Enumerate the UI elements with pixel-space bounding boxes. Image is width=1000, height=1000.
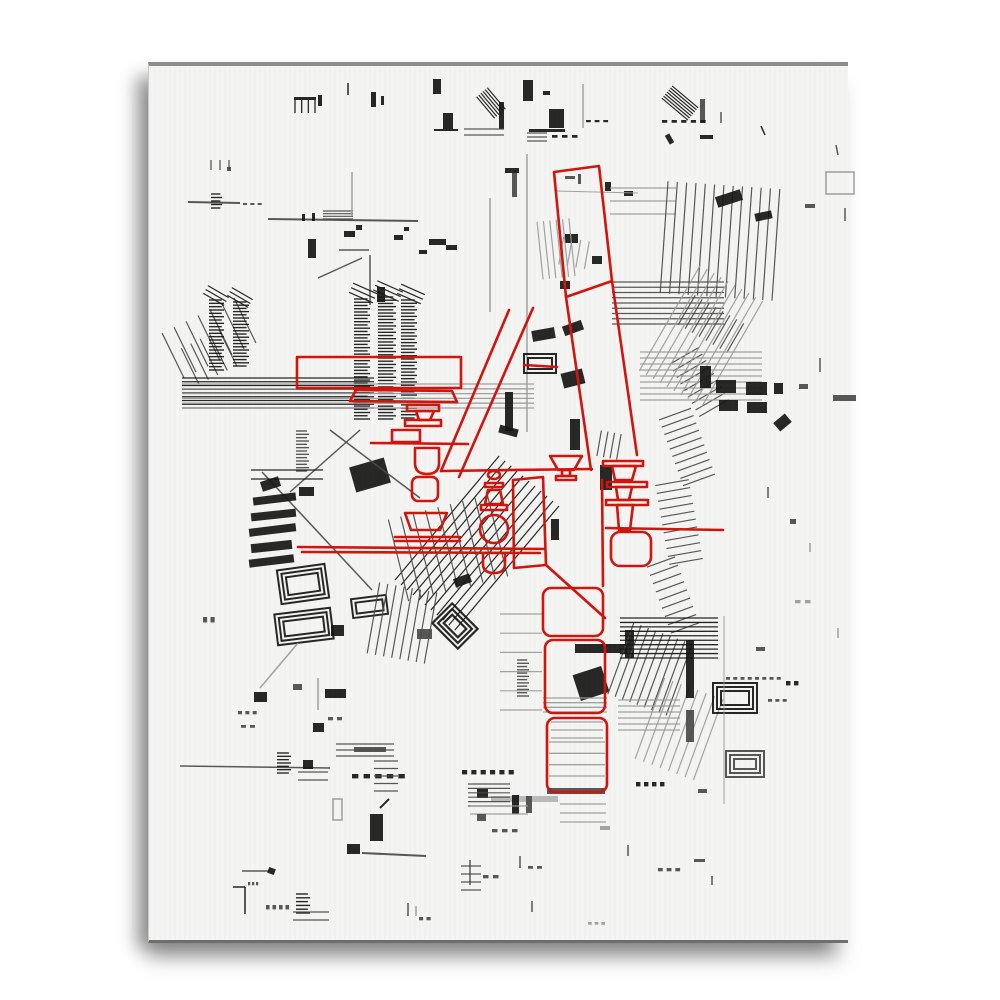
- mark-hatch-line: [657, 488, 690, 494]
- black-mark: [453, 573, 472, 587]
- mark-hatch-line: [208, 286, 229, 298]
- mark-dash: [490, 770, 495, 774]
- black-mark: [658, 84, 702, 122]
- black-mark: [254, 692, 267, 702]
- mark-hatch: [468, 784, 510, 806]
- mark-rect: [347, 844, 360, 854]
- mark-rect: [799, 384, 808, 389]
- mark-rect: [523, 80, 533, 101]
- mark-dash: [770, 677, 774, 680]
- mark-rect: [700, 99, 705, 123]
- mark-dash: [252, 882, 254, 885]
- mark-dash: [248, 882, 250, 885]
- black-mark: [756, 647, 765, 651]
- black-mark: [694, 859, 705, 862]
- black-mark: [655, 479, 703, 565]
- red-rect: [412, 477, 438, 501]
- black-mark: [768, 699, 787, 702]
- mark-dash: [795, 600, 801, 603]
- mark-rect: [578, 174, 581, 184]
- mark-dash: [726, 677, 730, 680]
- mark-rect: [294, 97, 316, 100]
- mark-hatch-line: [351, 288, 375, 299]
- mark-hatch-line: [537, 222, 543, 280]
- black-mark: [746, 382, 767, 395]
- mark-nested-rect: [283, 617, 325, 637]
- black-mark: [333, 799, 342, 820]
- mark-hatch-line: [665, 606, 693, 616]
- mark-hatch-line: [450, 504, 470, 586]
- black-mark: [331, 625, 344, 636]
- mark-diamond-rect: [438, 609, 472, 643]
- black-mark: [795, 600, 811, 603]
- mark-dash: [250, 725, 255, 728]
- black-mark: [826, 172, 854, 194]
- black-mark: [636, 782, 664, 786]
- black-mark: [472, 85, 511, 120]
- mark-hatch: [635, 678, 723, 780]
- mark-rect: [370, 814, 383, 841]
- mark-rect: [313, 723, 324, 732]
- mark-rect: [446, 245, 457, 250]
- black-mark: [543, 91, 550, 95]
- mark-dash: [660, 782, 664, 786]
- black-mark: [347, 844, 360, 854]
- black-mark: [747, 402, 767, 413]
- black-mark: [251, 509, 297, 522]
- mark-rect: [443, 113, 453, 129]
- mark-diamond-rect: [444, 615, 467, 638]
- mark-hatch-line: [670, 182, 678, 294]
- black-mark: [570, 419, 580, 450]
- mark-dash: [762, 677, 766, 680]
- mark-rect: [344, 231, 355, 237]
- mark-rect: [512, 173, 517, 197]
- mark-dash: [462, 770, 467, 774]
- mark-rect: [600, 826, 610, 830]
- red-rect: [392, 430, 420, 442]
- black-mark: [296, 431, 309, 471]
- mark-dash: [528, 866, 533, 869]
- black-mark: [774, 383, 783, 394]
- mark-rect: [312, 213, 315, 221]
- mark-line: [380, 799, 389, 808]
- black-mark: [726, 751, 764, 777]
- mark-dash: [675, 868, 680, 871]
- black-mark: [211, 194, 222, 208]
- page-background: [0, 0, 1000, 1000]
- mark-rect: [543, 91, 550, 95]
- mark-hatch-line: [688, 183, 696, 295]
- black-mark: [700, 135, 713, 139]
- mark-hatch-line: [668, 615, 696, 625]
- mark-hatch: [367, 583, 437, 664]
- mark-line: [836, 145, 838, 155]
- black-mark: [433, 79, 441, 94]
- mark-dash: [552, 135, 558, 138]
- mark-rect: [318, 95, 322, 106]
- red-rect: [405, 420, 441, 426]
- mark-hatch-line: [481, 93, 499, 114]
- mark-rect: [575, 644, 627, 653]
- black-mark: [374, 761, 398, 791]
- mark-rect: [253, 492, 297, 505]
- mark-dash: [211, 617, 215, 623]
- mark-dash: [691, 120, 696, 123]
- black-mark: [249, 554, 295, 567]
- mark-hatch-line: [479, 95, 497, 116]
- black-mark: [715, 189, 743, 207]
- mark-line: [761, 126, 765, 135]
- mark-hatch-line: [401, 284, 425, 295]
- black-mark: [665, 133, 674, 144]
- mark-rect: [434, 129, 458, 131]
- black-mark: [790, 519, 796, 524]
- mark-dash: [672, 120, 677, 123]
- mark-hatch-line: [653, 573, 681, 583]
- mark-rect: [694, 859, 705, 862]
- black-mark: [565, 176, 575, 179]
- black-mark: [470, 806, 528, 814]
- mark-dash: [427, 917, 431, 920]
- black-mark: [277, 564, 329, 604]
- mark-hatch-line: [550, 220, 556, 278]
- mark-hatch-line: [597, 430, 602, 456]
- black-mark: [468, 784, 510, 806]
- black-mark: [188, 202, 240, 203]
- mark-dash: [419, 917, 423, 920]
- mark-hatch-line: [744, 187, 752, 299]
- mark-dash: [652, 782, 656, 786]
- mark-hatch: [527, 133, 547, 141]
- black-mark: [308, 239, 316, 258]
- black-mark: [799, 384, 808, 389]
- mark-hatch-line: [753, 188, 761, 300]
- mark-dash: [243, 203, 247, 205]
- mark-hatch-line: [668, 551, 701, 557]
- black-mark: [267, 867, 276, 875]
- mark-rect: [499, 102, 504, 129]
- mark-hatch-line: [543, 221, 549, 279]
- mark-hatch-line: [650, 565, 678, 575]
- mark-rect: [686, 640, 694, 698]
- black-mark: [260, 643, 298, 688]
- mark-rect: [700, 135, 713, 139]
- black-mark: [605, 182, 611, 191]
- mark-hatch-line: [659, 590, 687, 600]
- black-mark: [302, 214, 305, 221]
- red-rect: [543, 588, 603, 636]
- mark-rect: [433, 79, 441, 94]
- mark-rect: [719, 400, 738, 411]
- red-rect: [611, 532, 651, 566]
- mark-rect: [756, 647, 765, 651]
- black-mark: [380, 799, 389, 808]
- mark-hatch-line: [772, 189, 780, 301]
- black-mark: [560, 804, 606, 822]
- black-mark: [578, 174, 581, 184]
- mark-outline-rect: [333, 799, 342, 820]
- black-mark: [505, 392, 513, 431]
- mark-hatch-line: [660, 687, 689, 768]
- red-line: [612, 281, 637, 455]
- mark-rect: [429, 239, 446, 245]
- mark-rect: [774, 383, 783, 394]
- mark-rect: [512, 795, 519, 814]
- mark-dash: [241, 725, 246, 728]
- mark-dash: [636, 782, 640, 786]
- black-mark: [754, 210, 772, 221]
- mark-dash: [537, 866, 542, 869]
- mark-hatch-line: [397, 293, 421, 304]
- black-mark: [700, 366, 711, 388]
- mark-rect: [592, 256, 602, 264]
- black-mark: [419, 917, 431, 920]
- mark-dash: [777, 677, 781, 680]
- black-mark: [716, 380, 736, 393]
- mark-dash: [755, 677, 759, 680]
- black-mark: [203, 617, 215, 623]
- black-mark: [249, 523, 297, 537]
- mark-rect: [833, 395, 856, 401]
- mark-dash: [279, 905, 283, 909]
- black-mark: [381, 96, 384, 105]
- mark-rect: [805, 204, 815, 208]
- mark-rect: [773, 413, 792, 431]
- black-mark: [562, 320, 584, 336]
- mark-line: [188, 202, 240, 203]
- mark-dash: [748, 677, 752, 680]
- mark-rect: [570, 419, 580, 450]
- black-mark: [293, 684, 302, 690]
- mark-hatch-line: [617, 434, 622, 460]
- mark-hatch-line: [603, 432, 608, 458]
- mark-rect: [715, 189, 743, 207]
- black-mark: [243, 203, 262, 205]
- black-mark: [526, 796, 532, 813]
- mark-dash: [667, 868, 672, 871]
- mark-dash: [502, 829, 508, 832]
- black-mark: [274, 608, 333, 646]
- mark-rect: [531, 327, 556, 342]
- black-mark: [529, 129, 565, 132]
- black-mark: [295, 100, 315, 113]
- mark-hatch: [662, 86, 698, 120]
- black-mark: [248, 882, 258, 885]
- red-line: [602, 480, 603, 586]
- mark-rect: [624, 191, 633, 196]
- black-mark: [233, 302, 249, 366]
- black-mark: [362, 853, 426, 856]
- mark-line: [330, 430, 420, 498]
- black-mark: [662, 120, 706, 123]
- black-mark: [551, 519, 559, 540]
- mark-rect: [505, 392, 513, 431]
- black-mark: [698, 789, 707, 793]
- mark-rect: [267, 867, 276, 875]
- mark-rect: [698, 789, 707, 793]
- black-mark: [552, 135, 578, 138]
- black-mark: [372, 280, 404, 301]
- mark-rect: [331, 625, 344, 636]
- mark-rect: [747, 402, 767, 413]
- mark-rect: [453, 573, 472, 587]
- black-mark: [586, 120, 608, 122]
- mark-dash: [245, 711, 249, 714]
- black-mark: [251, 540, 293, 553]
- mark-dash: [733, 677, 737, 680]
- mark-hatch: [659, 408, 715, 485]
- black-mark: [303, 760, 313, 769]
- black-mark: [713, 683, 757, 713]
- mark-line: [260, 643, 298, 688]
- mark-dash: [238, 711, 242, 714]
- black-mark: [323, 211, 353, 219]
- black-mark: [527, 133, 547, 141]
- black-mark: [277, 753, 291, 773]
- black-mark: [253, 492, 297, 505]
- black-mark: [524, 354, 556, 373]
- mark-hatch-line: [679, 183, 687, 295]
- mark-rect: [308, 239, 316, 258]
- mark-rect: [686, 710, 694, 742]
- black-mark: [227, 167, 231, 171]
- mark-dash: [644, 782, 648, 786]
- mark-hatch: [323, 211, 353, 219]
- black-mark: [443, 113, 453, 129]
- mark-rect: [790, 519, 796, 524]
- red-polygon: [617, 505, 633, 530]
- black-mark: [512, 795, 519, 814]
- mark-hatch: [227, 288, 252, 308]
- mark-dash: [681, 120, 686, 123]
- mark-dash: [588, 922, 592, 925]
- black-mark: [461, 866, 481, 890]
- mark-hatch-line: [660, 181, 668, 293]
- mark-rect: [227, 167, 231, 171]
- mark-dash: [700, 120, 705, 123]
- mark-hatch-line: [655, 480, 688, 486]
- mark-hatch: [597, 430, 621, 459]
- mark-rect: [665, 133, 674, 144]
- mark-dash: [203, 617, 207, 623]
- mark-rect: [302, 214, 305, 221]
- red-path: [415, 448, 439, 474]
- mark-rect: [477, 814, 486, 821]
- black-mark: [296, 894, 310, 913]
- black-mark: [312, 213, 315, 221]
- black-mark: [371, 92, 376, 107]
- black-mark: [483, 875, 499, 878]
- mark-dash: [768, 699, 772, 702]
- black-mark: [354, 747, 386, 752]
- mark-rect: [251, 509, 297, 522]
- mark-dash: [603, 120, 608, 122]
- black-mark: [512, 173, 517, 197]
- black-mark: [318, 258, 362, 278]
- black-mark: [356, 225, 362, 230]
- mark-rect: [551, 519, 559, 540]
- mark-dash: [253, 711, 257, 714]
- mark-rect: [371, 92, 376, 107]
- red-polygon: [616, 487, 632, 500]
- mark-rect: [354, 747, 386, 752]
- black-mark: [344, 231, 355, 237]
- mark-dash: [266, 905, 270, 909]
- mark-dash: [562, 135, 568, 138]
- mark-dash: [741, 677, 745, 680]
- mark-dash: [794, 681, 798, 685]
- mark-rect: [356, 225, 362, 230]
- black-mark: [531, 327, 556, 342]
- black-mark: [266, 905, 289, 909]
- artwork-svg: [0, 0, 1000, 1000]
- black-mark: [773, 413, 792, 431]
- black-mark: [551, 722, 603, 738]
- mark-rect: [381, 96, 384, 105]
- black-mark: [658, 406, 716, 488]
- mark-dash: [572, 135, 578, 138]
- black-mark: [464, 129, 504, 135]
- black-mark: [761, 126, 765, 135]
- black-mark: [328, 717, 342, 720]
- mark-rect: [529, 129, 565, 132]
- mark-hatch: [203, 286, 228, 306]
- mark-hatch-line: [661, 511, 694, 517]
- mark-hatch-line: [659, 503, 692, 509]
- mark-dash: [595, 922, 599, 925]
- black-mark: [241, 725, 255, 728]
- black-mark: [419, 250, 427, 254]
- mark-dash: [286, 905, 290, 909]
- black-mark: [549, 742, 605, 776]
- mark-rect: [254, 692, 267, 702]
- mark-rect: [293, 684, 302, 690]
- mark-line: [362, 853, 426, 856]
- mark-dash: [805, 600, 811, 603]
- mark-rect: [249, 554, 295, 567]
- mark-hatch-line: [662, 598, 690, 608]
- mark-dash: [481, 770, 486, 774]
- mark-dash: [352, 774, 358, 778]
- mark-hatch-line: [658, 495, 691, 501]
- mark-rect: [526, 796, 532, 813]
- mark-hatch-line: [388, 520, 408, 602]
- black-mark: [561, 369, 586, 389]
- black-mark: [726, 677, 781, 680]
- mark-rect: [419, 250, 427, 254]
- black-mark: [318, 95, 322, 106]
- red-line: [459, 308, 533, 477]
- black-mark: [549, 109, 564, 128]
- red-polygon: [485, 490, 503, 504]
- red-polygon: [416, 411, 434, 420]
- red-rect: [556, 476, 576, 480]
- mark-rect: [394, 235, 403, 240]
- black-mark: [211, 160, 229, 170]
- mark-rect: [754, 210, 772, 221]
- mark-dash: [493, 875, 499, 878]
- mark-hatch-line: [662, 519, 695, 525]
- black-mark: [299, 487, 314, 496]
- black-mark: [238, 711, 257, 714]
- mark-nested-rect: [734, 759, 756, 769]
- mark-line: [318, 258, 362, 278]
- mark-dash: [492, 829, 498, 832]
- mark-hatch-line: [477, 97, 495, 118]
- black-mark: [492, 829, 518, 832]
- mark-rect: [251, 540, 293, 553]
